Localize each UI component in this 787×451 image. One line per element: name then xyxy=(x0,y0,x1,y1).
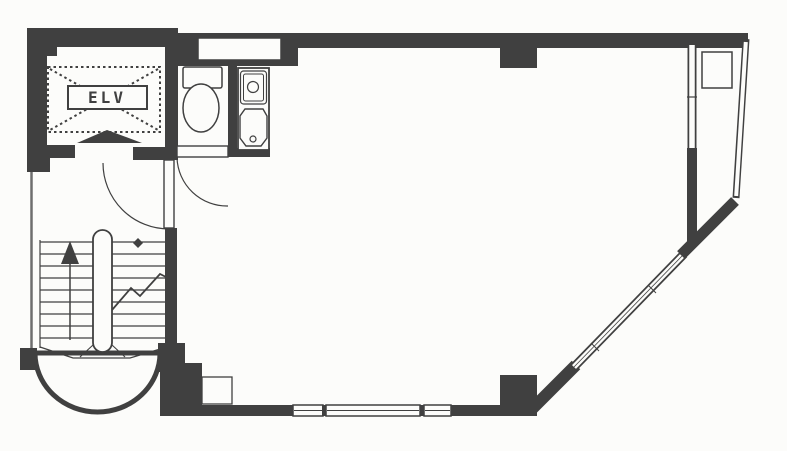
wc-door-swing xyxy=(177,158,228,206)
hall-door-leaf xyxy=(164,160,174,228)
hall-door-swing xyxy=(103,163,169,229)
south-wall-west xyxy=(200,405,293,416)
lobby-wall-left xyxy=(47,145,75,158)
toilet-bowl xyxy=(183,84,219,132)
south-wall-pilaster xyxy=(202,377,232,404)
top-wall-column xyxy=(500,47,537,68)
stair-bay-left-block xyxy=(20,348,37,370)
wc-sink-divider-wall xyxy=(228,66,237,151)
left-wall-upper xyxy=(27,28,47,150)
wc-door-leaf xyxy=(177,146,228,157)
stair-break-line xyxy=(112,274,166,310)
stair-newel-diamond xyxy=(133,238,143,248)
floor-plan: ELV xyxy=(0,0,787,451)
diagonal-wall-lower xyxy=(532,365,576,409)
sink-drain-upper xyxy=(248,82,259,93)
stair-divider xyxy=(93,230,112,352)
diagonal-window-mullion xyxy=(574,256,682,367)
stair-arrow-head xyxy=(61,241,79,264)
east-wall-lower xyxy=(687,148,697,244)
elevator-wall-notch xyxy=(45,42,57,56)
southwest-corner-wall xyxy=(160,363,202,416)
elevator-label: ELV xyxy=(88,88,126,107)
floor-plan-svg: ELV xyxy=(0,0,787,451)
top-window xyxy=(198,38,281,60)
south-wall-east xyxy=(451,405,500,416)
elevator-east-wall xyxy=(165,33,178,149)
southeast-column xyxy=(500,375,537,416)
stair-bay-wall xyxy=(35,353,160,412)
left-wall-corner-block xyxy=(27,145,50,172)
balcony-unit xyxy=(702,52,732,88)
